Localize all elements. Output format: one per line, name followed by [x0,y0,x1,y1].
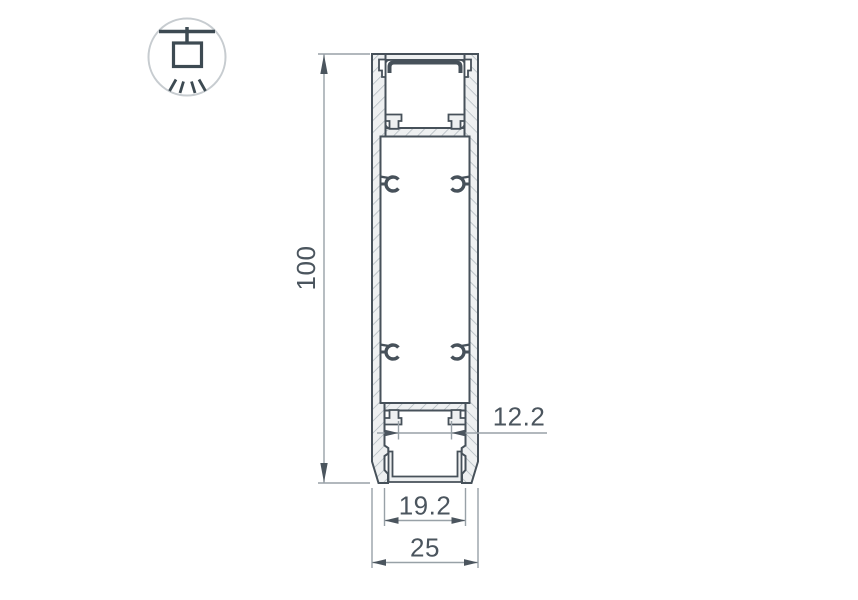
arrow-right [385,430,399,437]
arrow-up [320,55,327,75]
dimension-channel-width: 19.2 [385,488,466,526]
drawing-page: 100 12.2 19.2 25 [0,0,858,600]
dim-height-label: 100 [291,246,321,291]
arrow-left [372,559,386,566]
dim-channel-width-label: 19.2 [399,491,452,521]
arrow-left [385,517,399,524]
technical-drawing-canvas: 100 12.2 19.2 25 [0,0,858,600]
dimension-height: 100 [291,54,370,483]
bottom-diffuser [389,452,462,483]
dim-overall-width-label: 25 [410,533,440,563]
t-slot-bosses [384,115,467,425]
screw-bosses [380,177,470,360]
arrow-down [320,463,327,483]
dim-slot-width-label: 12.2 [493,402,546,432]
arrow-right [452,517,466,524]
profile-cross-section [372,54,478,483]
arrow-left [452,430,466,437]
mount-type-badge [149,19,226,96]
arrow-right [464,559,478,566]
